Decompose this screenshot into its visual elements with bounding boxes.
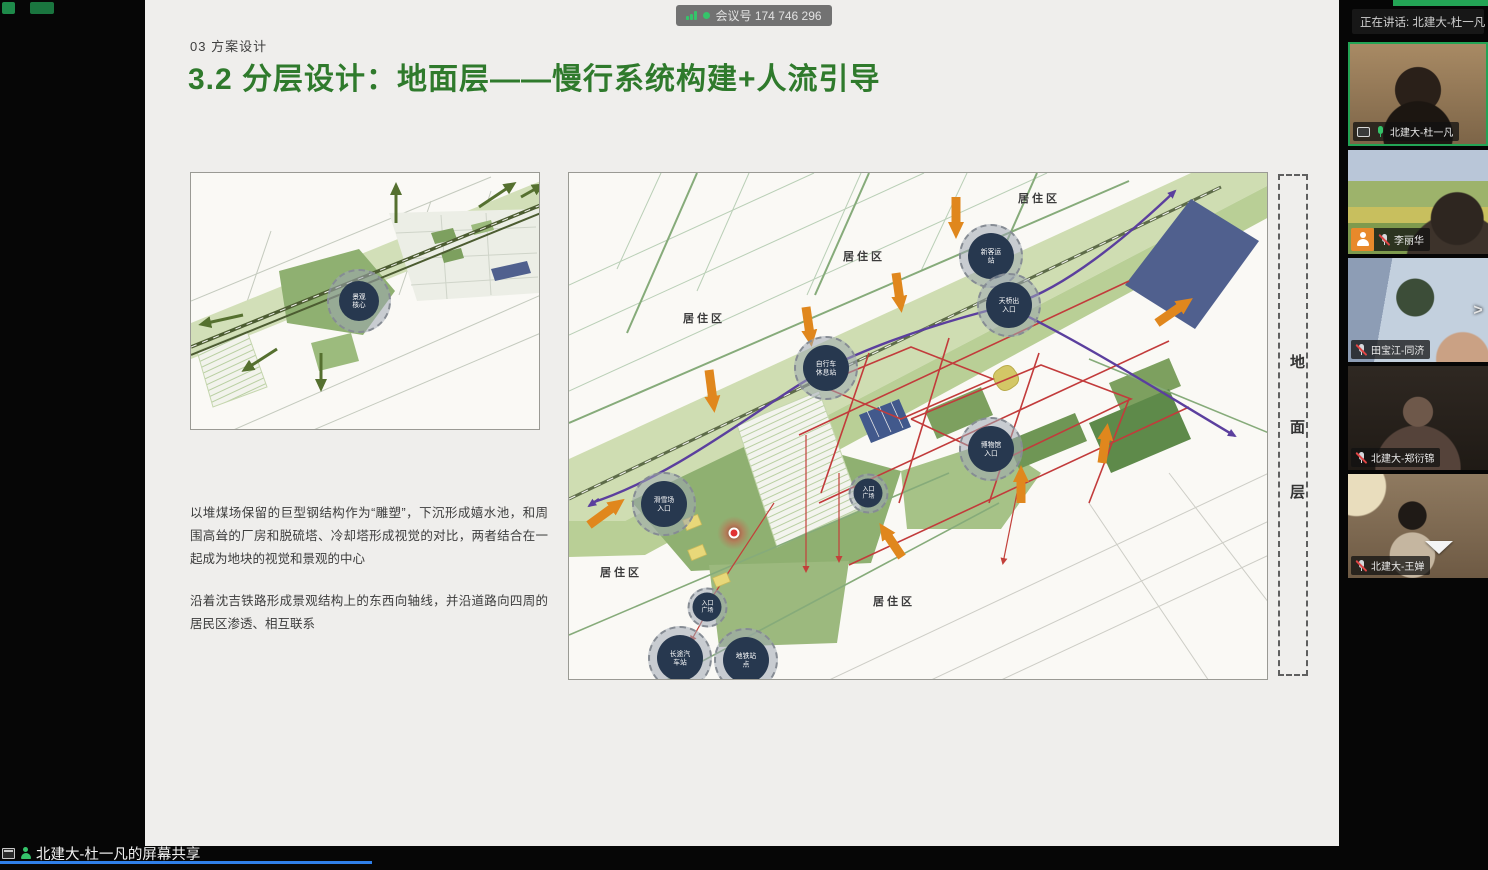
window-icon — [2, 848, 15, 859]
mic-muted-icon — [1355, 451, 1367, 464]
speaking-banner-text: 正在讲话: 北建大-杜一凡 — [1360, 14, 1485, 30]
area-label-residential: 居住区 — [873, 593, 915, 609]
meeting-number-label: 会议号 174 746 296 — [716, 7, 822, 24]
map-node-metro-station: 地铁站点 — [723, 637, 769, 680]
taskbar-highlight — [0, 861, 372, 864]
slide-paragraph: 沿着沈吉铁路形成景观结构上的东西向轴线，并沿道路向四周的居民区渗透、相互联系 — [190, 590, 548, 636]
mic-muted-icon — [1355, 559, 1367, 572]
map-node-entrance-plaza: 入口广场 — [854, 479, 883, 508]
speaking-indicator-bar — [1393, 0, 1488, 6]
meeting-window: 03 方案设计 3.2 分层设计：地面层——慢行系统构建+人流引导 — [0, 0, 1488, 870]
map-node-bicycle-rest-station: 自行车休息站 — [803, 345, 849, 391]
participant-name-chip: 田宝江-同济 — [1351, 340, 1430, 359]
scroll-down-icon[interactable] — [1425, 541, 1453, 554]
layer-tag-label: 地面层 — [1286, 354, 1307, 549]
area-label-residential: 居住区 — [843, 248, 885, 264]
layer-tag-box: 地面层 — [1278, 174, 1308, 676]
participant-name-chip: 北建大-杜一凡 — [1353, 122, 1459, 141]
slide-paragraph: 以堆煤场保留的巨型钢结构作为“雕塑”，下沉形成嬉水池，和周围高耸的厂房和脱硫塔、… — [190, 502, 548, 571]
participant-name-chip: 北建大-王婵 — [1351, 556, 1430, 575]
participant-name-chip: 北建大-郑衍锦 — [1351, 448, 1440, 467]
screen-share-statusbar: 北建大-杜一凡的屏幕共享 — [0, 844, 200, 862]
speaking-banner: 正在讲话: 北建大-杜一凡 — [1352, 9, 1484, 34]
map-node-footbridge-entrance: 天桥出入口 — [986, 282, 1032, 328]
map-node-entrance-plaza: 入口广场 — [693, 593, 722, 622]
map-node-museum-entrance: 博物馆入口 — [968, 426, 1014, 472]
meeting-number-pill[interactable]: 会议号 174 746 296 — [676, 5, 832, 26]
participant-name: 李丽华 — [1394, 232, 1424, 247]
map-node-coach-station: 长途汽车站 — [657, 635, 703, 680]
participant-video[interactable]: 田宝江-同济 — [1348, 258, 1488, 362]
green-dot-icon — [703, 12, 710, 19]
participant-video[interactable]: 北建大-杜一凡 — [1348, 42, 1488, 146]
area-label-residential: 居住区 — [600, 564, 642, 580]
participant-name-chip: 李丽华 — [1374, 228, 1430, 251]
participants-sidebar: 北建大-杜一凡 李丽华 田宝江-同济 北建大-郑衍锦 — [1348, 42, 1488, 582]
location-ping — [717, 516, 751, 550]
participant-name: 田宝江-同济 — [1371, 342, 1424, 357]
participant-name: 北建大-郑衍锦 — [1371, 450, 1434, 465]
main-map: 居住区 居住区 居住区 居住区 居住区 新客运站 天桥出入口 自行车休息站 博物… — [568, 172, 1268, 680]
slide-section-label: 03 方案设计 — [190, 36, 267, 55]
mic-icon — [1374, 125, 1386, 138]
sharing-person-icon — [20, 847, 31, 860]
participant-name: 北建大-杜一凡 — [1390, 124, 1453, 139]
area-label-residential: 居住区 — [1018, 190, 1060, 206]
participant-video[interactable]: 北建大-郑衍锦 — [1348, 366, 1488, 470]
signal-bars-icon — [686, 11, 697, 20]
area-label-residential: 居住区 — [683, 310, 725, 326]
participant-video[interactable]: 北建大-王婵 — [1348, 474, 1488, 578]
chevron-right-icon[interactable]: > — [1468, 298, 1488, 324]
participant-video[interactable]: 李丽华 — [1348, 150, 1488, 254]
mic-muted-icon — [1378, 233, 1390, 246]
small-map: 景观核心 — [190, 172, 540, 430]
shared-slide: 03 方案设计 3.2 分层设计：地面层——慢行系统构建+人流引导 — [145, 0, 1339, 846]
map-node-ski-entrance: 滑雪场入口 — [641, 481, 687, 527]
slide-title: 3.2 分层设计：地面层——慢行系统构建+人流引导 — [188, 54, 881, 98]
participant-name: 北建大-王婵 — [1371, 558, 1424, 573]
map-node-landscape-core: 景观核心 — [339, 281, 379, 321]
raise-hand-icon — [1351, 228, 1374, 251]
mic-muted-icon — [1355, 343, 1367, 356]
screen-share-icon — [1357, 127, 1370, 137]
